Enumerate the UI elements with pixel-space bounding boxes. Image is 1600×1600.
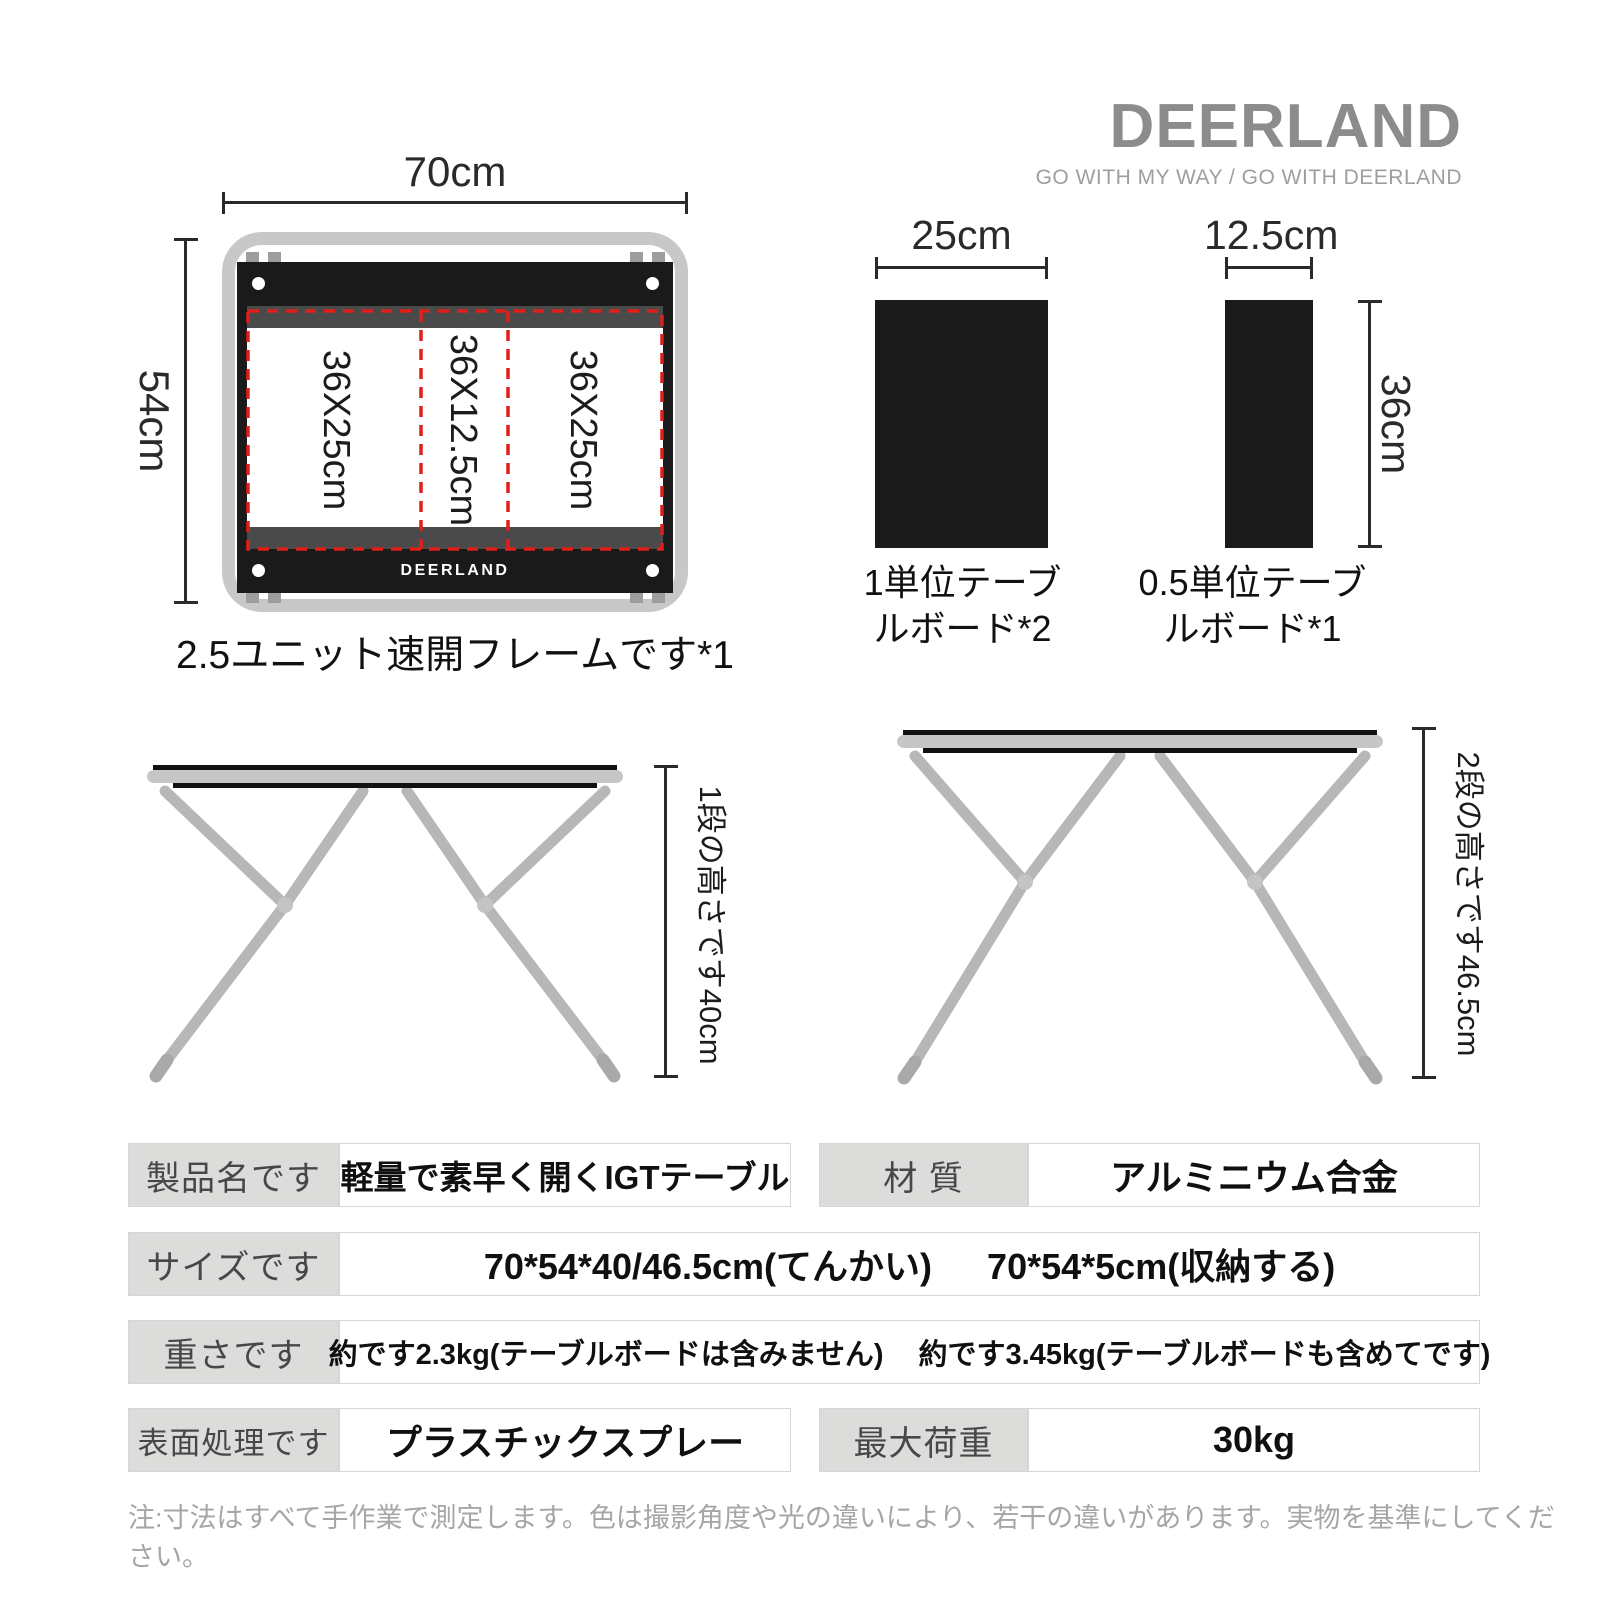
- product-infographic: DEERLAND GO WITH MY WAY / GO WITH DEERLA…: [0, 0, 1600, 1600]
- measurement-note: 注:寸法はすべて手作業で測定します。色は撮影角度や光の違いにより、若干の違いがあ…: [128, 1496, 1568, 1574]
- frame-width-dimension-label: 70cm: [222, 148, 688, 196]
- panel-size-label-2: 36X12.5cm: [441, 315, 484, 545]
- spec-product-name-value: 軽量で素早く開くIGTテーブル: [339, 1143, 791, 1207]
- brand-tagline: GO WITH MY WAY / GO WITH DEERLAND: [1036, 166, 1462, 190]
- frame-brand-print: DEERLAND: [237, 549, 673, 593]
- table1-top-slab: [147, 770, 623, 783]
- spec-product-name-label: 製品名です: [128, 1143, 339, 1207]
- table2-foot-right: [1365, 1062, 1376, 1078]
- frame-tab: [652, 252, 665, 262]
- brand-logo-block: DEERLAND GO WITH MY WAY / GO WITH DEERLA…: [1036, 96, 1462, 190]
- frame-tab: [268, 593, 281, 603]
- table2-foot-left: [904, 1062, 915, 1078]
- frame-width-dimension-line: [222, 201, 688, 204]
- frame-caption: 2.5ユニット速開フレームです*1: [150, 624, 760, 680]
- frame-tab: [246, 252, 259, 262]
- table1-leg-left: [167, 791, 363, 1060]
- board2-width-label: 12.5cm: [1204, 212, 1334, 259]
- table2-leg-right: [1160, 756, 1365, 1062]
- board1-caption-line1: 1単位テーブ: [845, 560, 1080, 606]
- table1-joint: [477, 897, 493, 913]
- board-1unit: [875, 300, 1048, 548]
- board2-height-label: 36cm: [1372, 369, 1419, 479]
- table2-top-slab: [897, 735, 1383, 748]
- table1-height-line: [664, 765, 667, 1078]
- frame-tab: [630, 593, 643, 603]
- spec-surface-value: プラスチックスプレー: [339, 1408, 791, 1472]
- table2-bottom-edge: [923, 748, 1357, 753]
- board2-caption-line2: ルボード*1: [1135, 606, 1370, 652]
- table1-leg-right: [407, 791, 603, 1060]
- board1-caption-line2: ルボード*2: [845, 606, 1080, 652]
- board2-height-line: [1368, 300, 1371, 548]
- panel-size-label-3: 36X25cm: [561, 330, 604, 530]
- frame-height-dimension-line: [184, 238, 187, 604]
- table2-height-label: 2段の高さです46.5cm: [1449, 728, 1494, 1080]
- board1-width-label: 25cm: [875, 212, 1048, 259]
- table2-height-line: [1422, 727, 1425, 1079]
- spec-size-value: 70*54*40/46.5cm(てんかい) 70*54*5cm(収納する): [339, 1232, 1480, 1296]
- board1-width-line: [875, 266, 1048, 269]
- board2-width-line: [1225, 266, 1313, 269]
- panel-size-label-1: 36X25cm: [314, 330, 357, 530]
- table2-joint: [1017, 874, 1033, 890]
- spec-size-label: サイズです: [128, 1232, 339, 1296]
- board2-caption: 0.5単位テーブ ルボード*1: [1135, 560, 1370, 652]
- table1-foot-right: [603, 1060, 614, 1076]
- spec-max-load-label: 最大荷重: [819, 1408, 1028, 1472]
- frame-tab: [630, 252, 643, 262]
- table2-leg-left: [915, 756, 1120, 1062]
- spec-surface-label: 表面処理です: [128, 1408, 339, 1472]
- spec-weight-label: 重さです: [128, 1320, 339, 1384]
- table1-joint: [277, 897, 293, 913]
- frame-tab: [652, 593, 665, 603]
- table2-joint: [1247, 874, 1263, 890]
- spec-weight-value-frame: 約です2.3kg(テーブルボードは含みません): [329, 1331, 884, 1373]
- table1-height-label: 1段の高さです40cm: [691, 775, 736, 1075]
- frame-top-bar: [237, 262, 673, 306]
- frame-tab: [246, 593, 259, 603]
- table-illustration-high: [895, 722, 1385, 1087]
- table1-foot-left: [156, 1060, 167, 1076]
- spec-weight-value: 約です2.3kg(テーブルボードは含みません) 約です3.45kg(テーブルボー…: [339, 1320, 1480, 1384]
- spec-material-value: アルミニウム合金: [1028, 1143, 1480, 1207]
- table1-strut-left: [165, 791, 285, 905]
- table1-bottom-edge: [173, 783, 597, 788]
- screw-icon: [646, 277, 659, 290]
- table1-top-edge: [153, 765, 617, 770]
- spec-weight-value-total: 約です3.45kg(テーブルボードも含めてです): [919, 1331, 1491, 1373]
- brand-logo: DEERLAND: [1036, 96, 1462, 158]
- table-illustration-low: [145, 755, 625, 1085]
- screw-icon: [252, 277, 265, 290]
- board-half-unit: [1225, 300, 1313, 548]
- board2-caption-line1: 0.5単位テーブ: [1135, 560, 1370, 606]
- spec-size-value-open: 70*54*40/46.5cm(てんかい): [484, 1238, 932, 1290]
- table1-strut-right: [485, 791, 605, 905]
- table2-strut-right: [1255, 756, 1365, 882]
- board1-caption: 1単位テーブ ルボード*2: [845, 560, 1080, 652]
- spec-max-load-value: 30kg: [1028, 1408, 1480, 1472]
- spec-size-value-folded: 70*54*5cm(収納する): [987, 1238, 1335, 1290]
- frame-tab: [268, 252, 281, 262]
- spec-material-label: 材 質: [819, 1143, 1028, 1207]
- table2-top-edge: [903, 730, 1377, 735]
- frame-height-dimension-label: 54cm: [130, 361, 178, 481]
- table2-strut-left: [915, 756, 1025, 882]
